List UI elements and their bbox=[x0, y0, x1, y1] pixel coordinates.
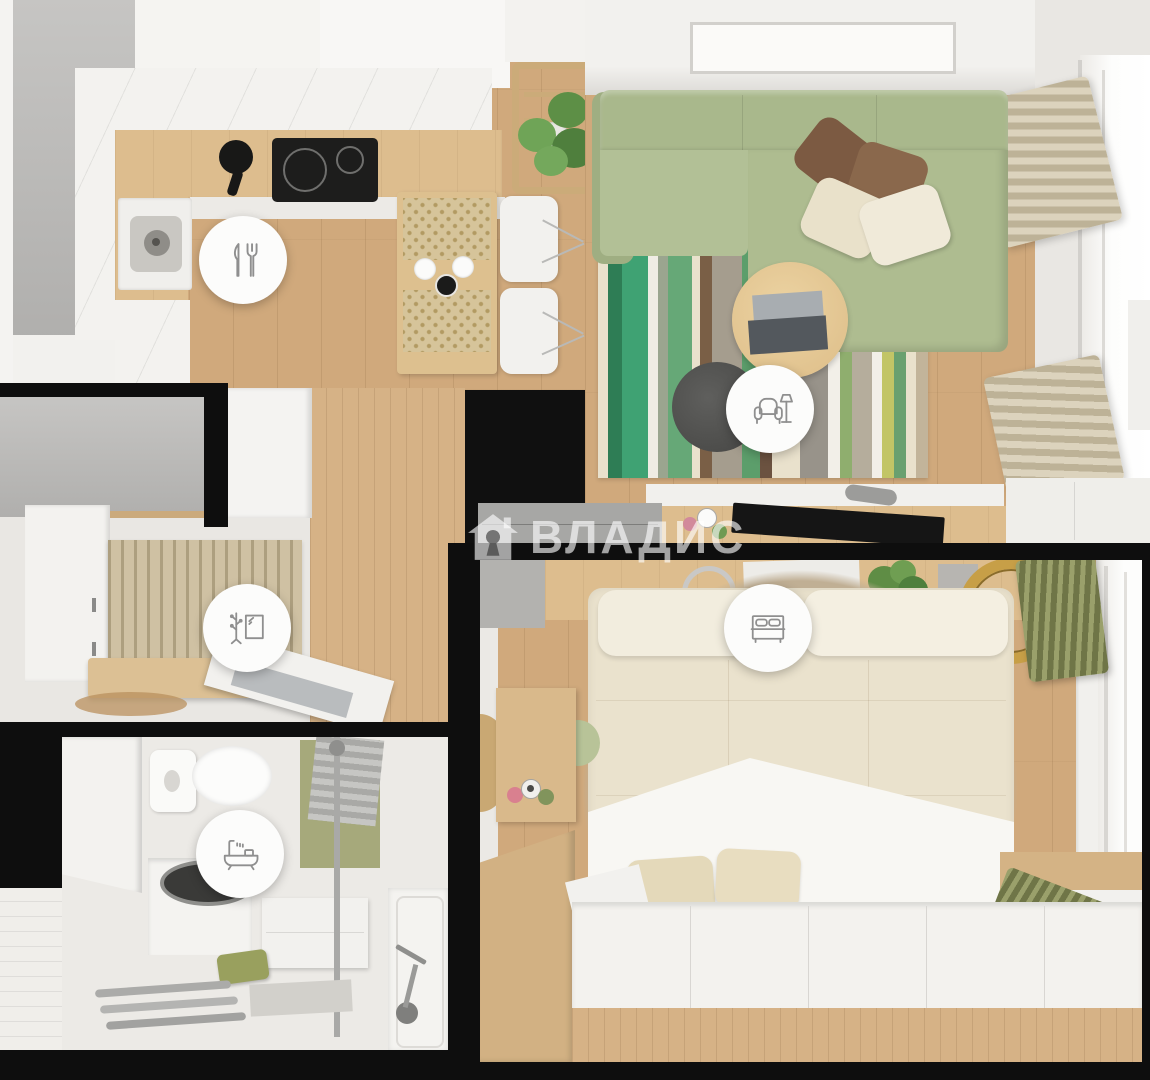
left-wall-strip bbox=[0, 0, 13, 390]
bathtub-rim bbox=[396, 896, 444, 1048]
house-keyhole-icon bbox=[466, 512, 520, 562]
bedroom-radiator bbox=[1076, 672, 1098, 854]
duvet-seam bbox=[596, 700, 1006, 701]
double-bed-icon bbox=[742, 602, 794, 654]
shower-head bbox=[329, 740, 345, 756]
hallway-gray-panel bbox=[0, 397, 204, 517]
bathroom-wall-cabinet bbox=[62, 737, 142, 893]
cosmetics-dot bbox=[527, 785, 534, 792]
wardrobe-handle bbox=[92, 642, 96, 656]
window-radiator bbox=[1128, 300, 1150, 430]
bed-pillow-top bbox=[804, 590, 1008, 656]
bench-seam bbox=[1044, 906, 1045, 1008]
hall-wardrobe bbox=[25, 505, 110, 682]
badge-living-room bbox=[726, 365, 814, 453]
badge-bathroom bbox=[196, 810, 284, 898]
plate bbox=[452, 256, 474, 278]
bathroom-storage-box bbox=[262, 898, 368, 968]
wall bbox=[0, 722, 448, 737]
bathroom-tile-wall bbox=[0, 885, 62, 1052]
toilet-bowl bbox=[192, 746, 272, 806]
wall bbox=[1142, 560, 1150, 1080]
watermark-text: ВЛАДИС bbox=[530, 512, 746, 562]
wall bbox=[465, 1062, 1150, 1080]
hallway-open-door-top bbox=[228, 388, 312, 518]
bed-cushion-tan bbox=[715, 848, 802, 910]
badge-bedroom bbox=[724, 584, 812, 672]
apartment-floor-plan-render: ВЛАДИС bbox=[0, 0, 1150, 1080]
laptop-keyboard bbox=[748, 315, 828, 354]
bath-mat bbox=[249, 979, 353, 1016]
storage-wood-front bbox=[572, 1008, 1142, 1062]
base-cabinet-left bbox=[115, 300, 190, 390]
toilet-flush-button bbox=[164, 770, 180, 792]
coffee-cup bbox=[435, 274, 458, 297]
dining-chair bbox=[500, 196, 558, 282]
bench-seam bbox=[690, 906, 691, 1008]
gray-towels bbox=[308, 734, 385, 827]
cooktop-burner-small bbox=[336, 146, 364, 174]
bedroom-gray-cabinet bbox=[480, 558, 545, 628]
box-seam bbox=[266, 932, 364, 933]
wall bbox=[0, 1050, 465, 1080]
living-white-cabinet bbox=[1006, 478, 1150, 544]
wall bbox=[448, 543, 480, 1080]
sofa-seat bbox=[600, 150, 748, 256]
armchair-floor-lamp-icon bbox=[744, 383, 796, 435]
sink-drain-hole bbox=[152, 238, 160, 246]
bench-seam bbox=[926, 906, 927, 1008]
olive-curtain-top bbox=[1015, 552, 1109, 683]
cosmetics-green bbox=[538, 789, 554, 805]
placemat-bottom bbox=[403, 290, 491, 352]
kitchen-right-wall bbox=[505, 0, 590, 62]
placemat-top bbox=[403, 198, 491, 260]
cutlery-icon bbox=[217, 234, 269, 286]
badge-hallway bbox=[203, 584, 291, 672]
storage-bench-top bbox=[572, 902, 1142, 1012]
ceiling-light-panel bbox=[690, 22, 956, 74]
plant-foliage bbox=[548, 92, 588, 128]
storage-left-column bbox=[480, 830, 575, 1062]
wall bbox=[204, 383, 228, 527]
wall bbox=[0, 737, 62, 888]
bedroom-dresser bbox=[496, 688, 576, 822]
cooktop-burner-large bbox=[283, 148, 327, 192]
cabinet-seam bbox=[1074, 482, 1075, 540]
upper-cabinets-top bbox=[75, 68, 492, 134]
coat-rack-mirror-icon bbox=[221, 602, 273, 654]
bench-seam bbox=[808, 906, 809, 1008]
watermark: ВЛАДИС bbox=[466, 512, 746, 562]
dining-chair bbox=[500, 288, 558, 374]
bathtub-shower-icon bbox=[214, 828, 266, 880]
wardrobe-handle bbox=[92, 598, 96, 612]
badge-kitchen bbox=[199, 216, 287, 304]
hall-round-mat bbox=[75, 692, 187, 716]
plate bbox=[414, 258, 436, 280]
sofa-seam bbox=[742, 95, 743, 150]
plant-foliage bbox=[534, 146, 568, 176]
wall bbox=[0, 383, 228, 397]
